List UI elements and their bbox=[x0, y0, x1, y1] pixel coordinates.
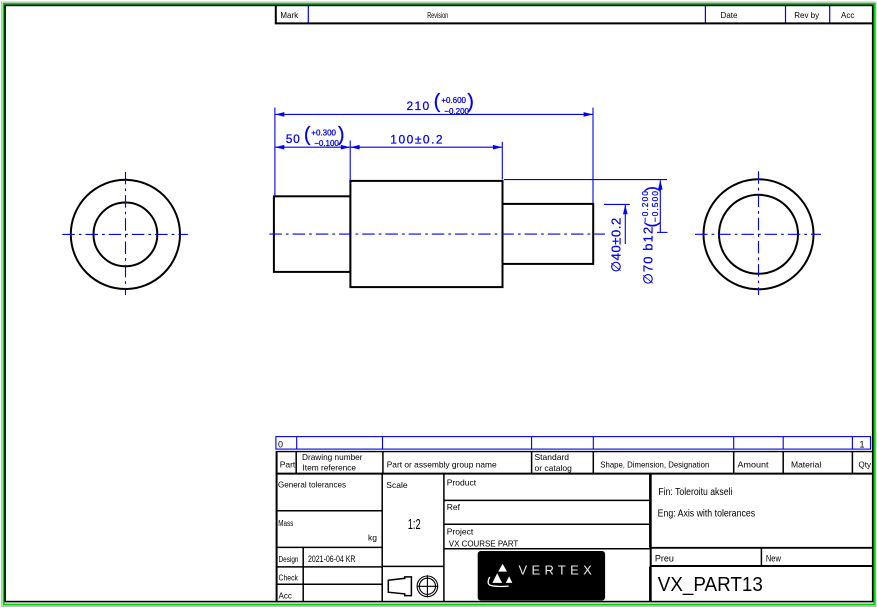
svg-text:+0.300: +0.300 bbox=[311, 128, 336, 137]
svg-text:Product: Product bbox=[447, 477, 477, 487]
svg-text:+0.600: +0.600 bbox=[441, 96, 466, 105]
svg-text:Acc: Acc bbox=[279, 591, 292, 600]
svg-text:VX COURSE PART: VX COURSE PART bbox=[449, 538, 519, 548]
svg-text:Revision: Revision bbox=[427, 11, 448, 20]
svg-text:Project: Project bbox=[447, 527, 474, 537]
svg-text:−0.500: −0.500 bbox=[650, 190, 660, 222]
svg-text:VX_PART13: VX_PART13 bbox=[658, 574, 763, 596]
svg-text:Drawing number: Drawing number bbox=[302, 452, 363, 462]
svg-text:Qty: Qty bbox=[859, 461, 871, 470]
svg-text:−0.200: −0.200 bbox=[640, 190, 650, 222]
svg-text:−0.100: −0.100 bbox=[314, 139, 339, 148]
svg-text:Eng: Axis with tolerances: Eng: Axis with tolerances bbox=[658, 508, 756, 519]
svg-text:Part or assembly group name: Part or assembly group name bbox=[387, 460, 497, 470]
svg-text:VERTEX: VERTEX bbox=[519, 563, 597, 578]
svg-text:Standard: Standard bbox=[535, 452, 570, 462]
svg-text:or catalog: or catalog bbox=[535, 463, 573, 473]
svg-text:Date: Date bbox=[721, 11, 738, 20]
svg-text:Design: Design bbox=[279, 555, 299, 564]
svg-text:): ) bbox=[338, 124, 345, 146]
svg-text:Ref: Ref bbox=[447, 502, 461, 512]
svg-text:kg: kg bbox=[368, 532, 377, 542]
svg-text:Mark: Mark bbox=[280, 11, 299, 20]
svg-text:): ) bbox=[642, 186, 661, 192]
svg-text:): ) bbox=[467, 91, 474, 113]
svg-text:Preu: Preu bbox=[655, 553, 674, 563]
svg-text:General tolerances: General tolerances bbox=[278, 480, 346, 490]
svg-text:Check: Check bbox=[279, 574, 299, 583]
svg-text:∅40±0.2: ∅40±0.2 bbox=[609, 217, 624, 272]
svg-text:Shape, Dimension, Designation: Shape, Dimension, Designation bbox=[600, 460, 709, 470]
svg-text:Scale: Scale bbox=[386, 480, 408, 490]
svg-text:Acc: Acc bbox=[841, 11, 854, 20]
svg-text:New: New bbox=[766, 553, 781, 563]
svg-text:Mass: Mass bbox=[278, 519, 293, 528]
svg-text:2021-06-04 KR: 2021-06-04 KR bbox=[308, 554, 356, 564]
svg-text:(: ( bbox=[304, 124, 311, 146]
svg-text:Fin: Toleroitu akseli: Fin: Toleroitu akseli bbox=[658, 487, 732, 498]
svg-text:−0.200: −0.200 bbox=[444, 107, 469, 116]
svg-text:210: 210 bbox=[407, 99, 431, 113]
svg-text:1: 1 bbox=[860, 440, 865, 450]
svg-text:50: 50 bbox=[286, 132, 301, 146]
svg-text:Rev by: Rev by bbox=[794, 11, 819, 20]
svg-text:1:2: 1:2 bbox=[408, 516, 421, 533]
svg-text:∅70 b12: ∅70 b12 bbox=[640, 226, 655, 285]
svg-text:Item reference: Item reference bbox=[303, 463, 357, 473]
svg-text:(: ( bbox=[434, 91, 441, 113]
svg-text:Material: Material bbox=[791, 460, 821, 470]
svg-text:0: 0 bbox=[278, 440, 283, 450]
svg-text:Part: Part bbox=[280, 460, 296, 470]
svg-text:Amount: Amount bbox=[738, 460, 770, 470]
svg-text:100±0.2: 100±0.2 bbox=[390, 133, 444, 147]
